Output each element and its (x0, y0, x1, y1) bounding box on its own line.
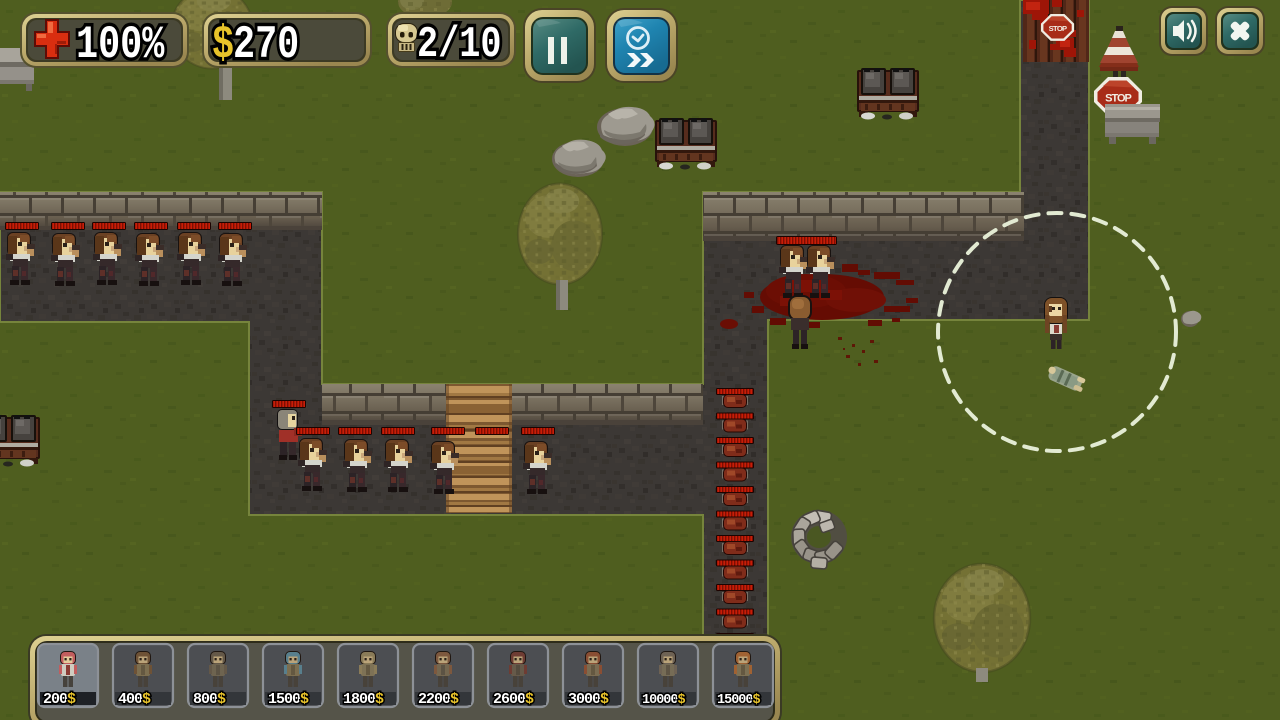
svg-text:100%: 100% (76, 18, 165, 71)
svg-text:1500$: 1500$ (268, 691, 309, 708)
svg-text:800$: 800$ (193, 691, 226, 708)
svg-text:3000$: 3000$ (568, 691, 609, 708)
svg-text:2600$: 2600$ (493, 691, 534, 708)
svg-text:400$: 400$ (118, 691, 151, 708)
svg-text:10000$: 10000$ (642, 693, 686, 708)
svg-text:2/10: 2/10 (417, 20, 501, 70)
svg-text:1800$: 1800$ (343, 691, 384, 708)
svg-text:270: 270 (233, 18, 299, 71)
svg-text:200$: 200$ (43, 691, 76, 708)
svg-text:15000$: 15000$ (717, 693, 761, 708)
svg-text:$: $ (212, 18, 234, 71)
svg-text:2200$: 2200$ (418, 691, 459, 708)
